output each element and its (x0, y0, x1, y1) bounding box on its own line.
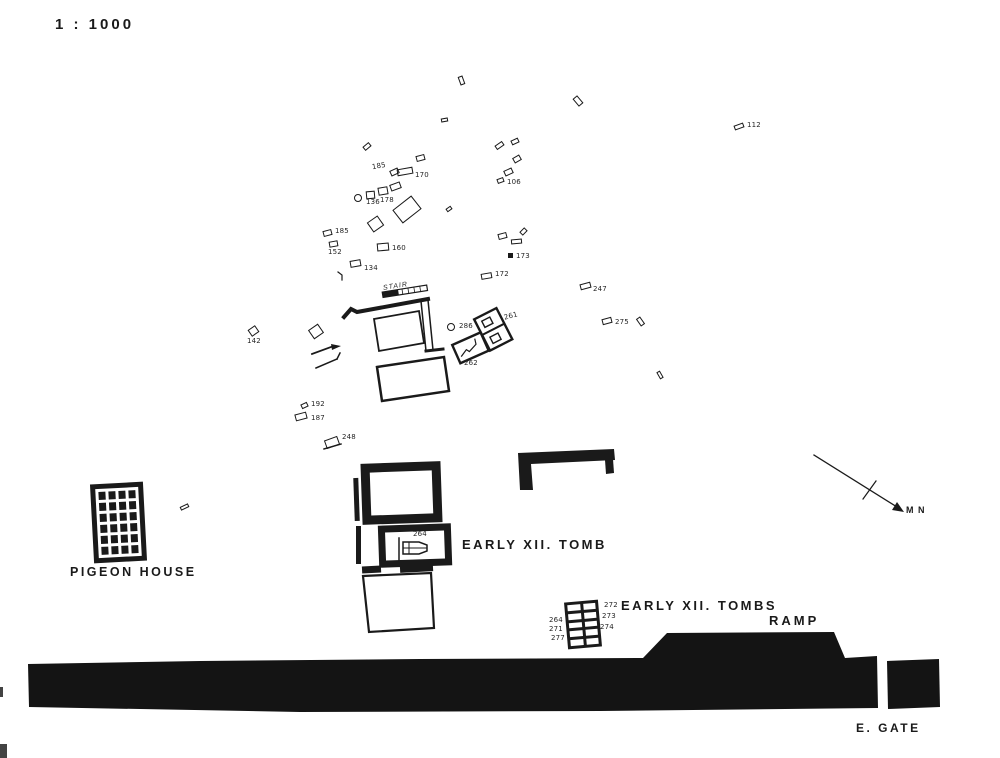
tomb-number-label: 273 (602, 613, 616, 620)
tomb-number-label: 136 (366, 199, 380, 206)
north-arrow-head (892, 502, 904, 512)
tomb-number-label: 248 (342, 434, 356, 441)
north-label: M N (906, 505, 926, 515)
grid-cell (128, 490, 135, 498)
grid-cell (120, 524, 127, 532)
tomb-number-label: 277 (551, 635, 565, 642)
e-gate-label: E. GATE (856, 721, 921, 735)
west-wall-bar (356, 526, 361, 564)
pigeon-house (90, 482, 147, 564)
court-north-wall (344, 299, 428, 317)
tomb-number-label: 142 (247, 338, 261, 345)
early-xii-tombs-label: EARLY XII. TOMBS (621, 598, 777, 613)
tomb-number-label: 271 (549, 626, 563, 633)
tomb-number-label: 134 (364, 265, 378, 272)
tomb-number-label: 275 (615, 319, 629, 326)
grid-cell (99, 503, 106, 511)
grid-cell (111, 546, 118, 554)
grid-cell (98, 492, 105, 500)
north-arrow-tick (863, 481, 876, 499)
grid-cell (585, 629, 598, 636)
scan-smudge (0, 687, 3, 697)
scan-smudge (0, 744, 7, 758)
grid-cell (584, 620, 597, 627)
wall-bar (362, 565, 381, 573)
wall-fragment-hook (337, 353, 340, 359)
tomb-number-label: 152 (328, 249, 342, 256)
wall-fragment (316, 359, 337, 368)
tomb-marker (508, 253, 513, 258)
tomb-marker (377, 186, 388, 196)
tomb-marker (447, 323, 455, 331)
tomb-number-label: 272 (604, 602, 618, 609)
grid-cell (121, 546, 128, 554)
grid-cell (120, 513, 127, 521)
enclosure-wall-band (28, 632, 878, 712)
tomb-number-label: 106 (507, 179, 521, 186)
grid-cell (121, 535, 128, 543)
grid-cell (131, 534, 138, 542)
tomb-number-label: 264 (549, 617, 563, 624)
tomb-marker (377, 242, 390, 251)
tomb-number-label: 112 (747, 122, 761, 129)
tomb-number-label: 247 (593, 286, 607, 293)
grid-tomb-block (564, 600, 602, 650)
grid-cell (101, 547, 108, 555)
grid-cell (109, 502, 116, 510)
tomb-marker (354, 194, 362, 202)
wall-stub (426, 349, 443, 351)
wall-tick (338, 272, 342, 280)
inner-chamber (374, 311, 424, 351)
grid-cell (131, 545, 138, 553)
grid-cell (570, 630, 583, 637)
tomb-number-label: 274 (600, 624, 614, 631)
tomb-number-label: 185 (335, 228, 349, 235)
coffin-264 (399, 538, 427, 560)
tomb-number-label: 262 (464, 360, 478, 367)
grid-cell (108, 491, 115, 499)
central-tomb-complex (312, 272, 512, 401)
grid-cell (568, 613, 581, 620)
pigeon-house-label: PIGEON HOUSE (70, 565, 197, 579)
tomb-number-label: 264 (413, 531, 427, 538)
grid-cell (118, 491, 125, 499)
grid-cell (583, 612, 596, 619)
tomb-number-label: 178 (380, 197, 394, 204)
plan-drawing (0, 0, 1000, 758)
wall-fragment-head (331, 344, 341, 350)
l-shaped-wall (518, 449, 615, 490)
tomb-number-label: 187 (311, 415, 325, 422)
grid-cell (119, 502, 126, 510)
tomb-number-label: 160 (392, 245, 406, 252)
grid-cell (569, 622, 582, 629)
grid-cell (583, 603, 596, 610)
grid-cell (111, 535, 118, 543)
grid-cell (130, 523, 137, 531)
tomb-number-label: 172 (495, 271, 509, 278)
tomb-number-label: 286 (459, 323, 473, 330)
wall-fragment (312, 347, 331, 354)
grid-cell (129, 512, 136, 520)
grid-cell (570, 639, 583, 646)
grid-cell (100, 525, 107, 533)
lower-room (363, 573, 434, 632)
lower-court (377, 357, 449, 401)
early-xii-tomb-label: EARLY XII. TOMB (462, 537, 607, 552)
tomb-main-chamber (365, 466, 438, 520)
enclosure-wall (0, 632, 940, 758)
tomb-number-label: 192 (311, 401, 325, 408)
ramp-label: RAMP (769, 613, 819, 628)
west-wall-bar (353, 478, 359, 521)
scale-label: 1 : 1000 (55, 16, 134, 33)
grid-cell (129, 501, 136, 509)
grid-cell (567, 604, 580, 611)
tomb-number-label: 173 (516, 253, 530, 260)
tomb-number-label: 170 (415, 172, 429, 179)
site-plan-canvas: 1121851701361781851521601341061731722472… (0, 0, 1000, 758)
early-xii-tomb-structure (353, 466, 448, 632)
grid-cell (100, 514, 107, 522)
north-arrow (814, 455, 904, 512)
grid-cell (110, 524, 117, 532)
grid-cell (101, 536, 108, 544)
grid-cell (586, 638, 599, 645)
grid-cell (110, 513, 117, 521)
tomb-marker (511, 239, 522, 245)
east-gate-block (887, 659, 940, 709)
